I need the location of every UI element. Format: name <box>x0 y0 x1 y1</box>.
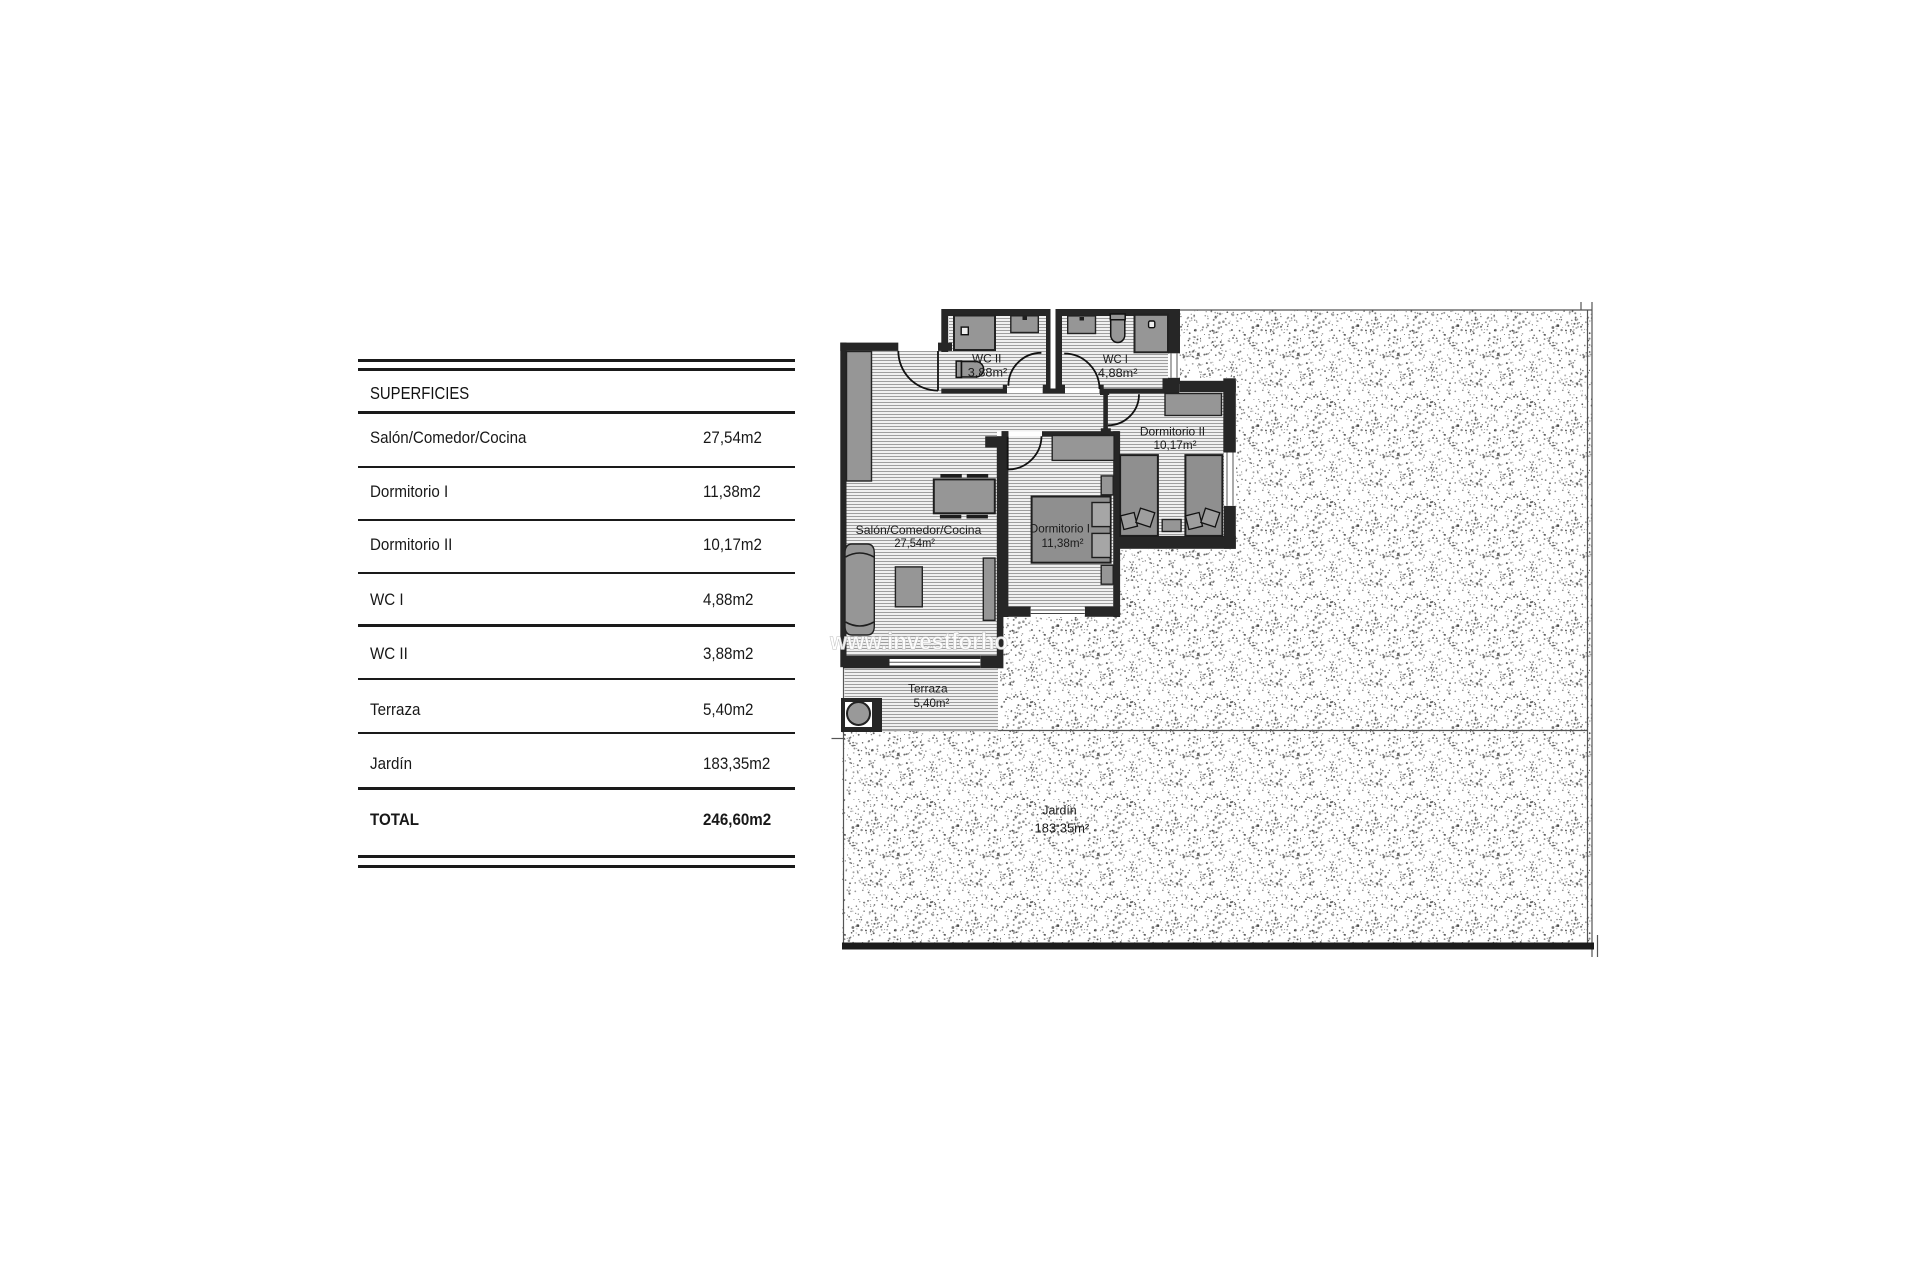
svg-text:27,54m²: 27,54m² <box>894 536 935 550</box>
svg-text:183,35m²: 183,35m² <box>1035 820 1090 835</box>
svg-text:www.investforho: www.investforho <box>829 629 1008 656</box>
svg-text:5,40m²: 5,40m² <box>913 696 949 710</box>
svg-text:Salón/Comedor/Cocina: Salón/Comedor/Cocina <box>856 523 982 537</box>
svg-text:10,17m²: 10,17m² <box>1154 438 1197 452</box>
svg-text:3,88m²: 3,88m² <box>968 365 1008 379</box>
svg-text:11,38m²: 11,38m² <box>1042 536 1084 550</box>
svg-text:Dormitorio I: Dormitorio I <box>1030 522 1090 536</box>
svg-text:Dormitorio II: Dormitorio II <box>1140 424 1205 438</box>
svg-text:4,88m²: 4,88m² <box>1098 366 1138 380</box>
svg-text:Jardín: Jardín <box>1042 802 1076 817</box>
svg-text:Terraza: Terraza <box>908 681 948 695</box>
svg-text:WC II: WC II <box>972 351 1002 365</box>
svg-text:WC I: WC I <box>1103 352 1128 366</box>
